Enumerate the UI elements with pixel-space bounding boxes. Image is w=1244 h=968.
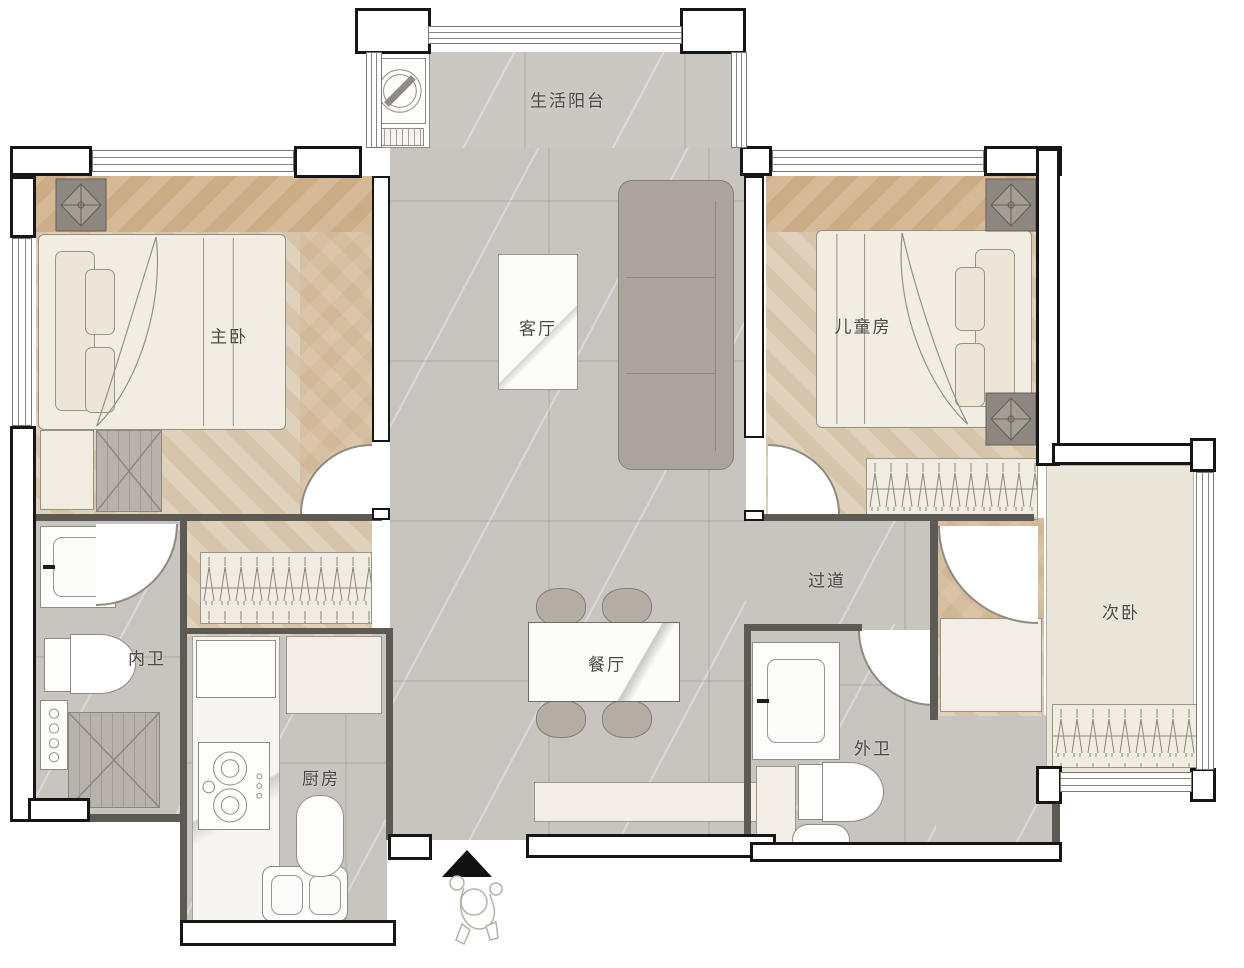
wall-master-right-stub <box>372 508 390 520</box>
wall-entrance-right <box>526 834 776 858</box>
master-nightstand <box>40 430 94 510</box>
wall-kids-bottom <box>762 514 1034 521</box>
wall-outer-bath-left <box>744 624 751 848</box>
stove-icon <box>198 742 270 830</box>
wall-bottom-left-column <box>28 798 90 822</box>
sofa-backrest-line <box>715 201 716 451</box>
wall-balcony-right-column <box>680 8 746 54</box>
person-figure-icon <box>444 872 506 952</box>
wall-top-mid-right <box>740 146 772 176</box>
wall-hall-right <box>930 514 938 720</box>
outer-toilet-tank <box>798 764 824 820</box>
kids-wardrobe-icon <box>866 458 1038 520</box>
column-diamond-icon <box>55 178 107 232</box>
secondary-bottom-window <box>1060 772 1192 792</box>
kitchen-sink-icon <box>262 866 348 922</box>
kids-top-window <box>772 150 984 172</box>
column-diamond-icon <box>985 392 1037 446</box>
wall-master-bottom <box>34 514 382 521</box>
column-diamond-icon <box>985 178 1037 232</box>
shower-knobs <box>41 701 67 769</box>
wall-kitchen-bottom <box>180 920 396 946</box>
room-label-inner-bathroom: 内卫 <box>128 645 166 670</box>
master-top-window <box>92 150 294 172</box>
sink-basin <box>309 875 341 915</box>
wall-right-bottom-column <box>1190 768 1216 802</box>
outer-bath-sink-icon <box>752 642 840 760</box>
faucet-icon <box>43 565 55 569</box>
hanger-icon <box>867 459 1037 519</box>
room-label-outer-bathroom: 外卫 <box>854 735 892 760</box>
wall-balcony-left-column <box>355 8 431 54</box>
room-label-dining-room: 餐厅 <box>588 651 626 676</box>
kitchen-cabinet <box>196 640 276 698</box>
water-heater-icon <box>296 795 344 877</box>
room-label-kitchen: 厨房 <box>302 765 340 790</box>
hanger-icon <box>1053 705 1197 767</box>
master-dresser-icon <box>96 430 162 512</box>
stove-burners <box>199 743 269 829</box>
shoe-cabinet-icon <box>534 782 774 822</box>
sofa-cushion-line <box>627 277 715 278</box>
master-bed-duvet-fold <box>39 235 285 429</box>
kitchen-storage-icon <box>286 636 382 714</box>
wall-secondary-bottom-column <box>1036 766 1062 804</box>
master-wardrobe-icon <box>200 552 372 624</box>
faucet-icon <box>757 699 769 703</box>
room-label-secondary-bedroom: 次卧 <box>1102 599 1140 624</box>
room-label-kids-room: 儿童房 <box>835 313 892 338</box>
secondary-wardrobe-icon <box>1052 704 1198 768</box>
room-label-living-room: 客厅 <box>519 315 557 340</box>
sink-basin <box>767 659 825 743</box>
wall-kids-left <box>744 176 764 438</box>
master-bed-icon <box>38 234 286 430</box>
wall-left-upper <box>10 176 36 238</box>
wall-top-mid-left <box>294 146 362 178</box>
dining-chair-icon <box>602 700 652 738</box>
sofa-icon <box>618 180 734 470</box>
wall-secondary-top <box>1052 443 1198 465</box>
secondary-entry-cabinet-icon <box>940 618 1042 712</box>
floor-plan: 生活阳台 主卧 客厅 儿童房 次卧 过道 内卫 餐厅 外卫 厨房 <box>0 0 1244 968</box>
wall-bottom-right <box>750 842 1062 862</box>
wall-entrance-left <box>388 834 432 860</box>
master-side-window <box>12 238 32 426</box>
wall-top-left <box>10 146 92 176</box>
shower-panel-icon <box>40 700 68 770</box>
balcony-side-window-right <box>731 52 747 148</box>
room-label-master-bedroom: 主卧 <box>210 323 248 348</box>
dining-chair-icon <box>536 700 586 738</box>
dining-chair-icon <box>602 588 652 626</box>
sink-basin <box>271 875 303 915</box>
wall-master-right <box>372 176 390 442</box>
shower-tray <box>68 712 160 808</box>
room-label-hallway: 过道 <box>808 567 846 592</box>
balcony-window <box>428 26 682 44</box>
wall-outer-bath-top <box>744 624 862 631</box>
secondary-side-window <box>1196 472 1214 770</box>
wall-left-lower <box>10 426 36 822</box>
wall-kitchen-left <box>180 514 187 926</box>
wall-right-top-column <box>1190 438 1216 472</box>
wall-kitchen-top <box>187 628 387 634</box>
wall-kitchen-right <box>386 628 393 840</box>
wall-kids-left-stub <box>744 510 764 521</box>
inner-toilet-tank <box>44 638 72 692</box>
balcony-side-window-left <box>366 52 382 148</box>
hanger-icon <box>201 553 371 623</box>
sofa-cushion-line <box>627 373 715 374</box>
dining-chair-icon <box>536 588 586 626</box>
wall-kids-right <box>1036 148 1060 466</box>
room-label-balcony: 生活阳台 <box>530 87 606 112</box>
